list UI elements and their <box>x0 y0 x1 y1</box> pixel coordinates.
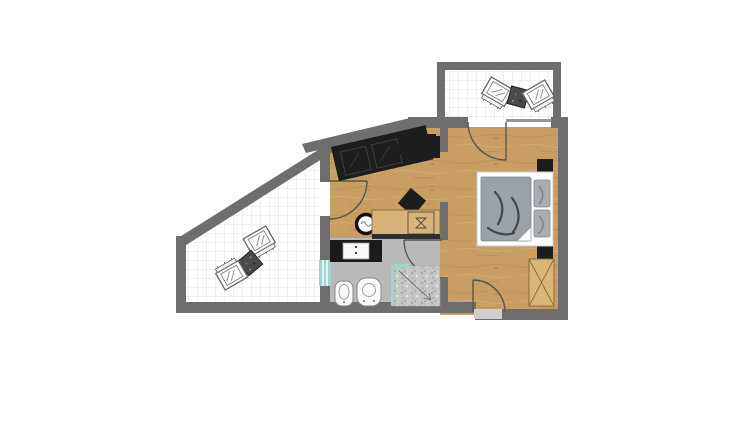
shower-glass-left <box>391 266 394 306</box>
bathroom-window-glass <box>319 260 331 286</box>
pillow-2 <box>534 210 550 237</box>
partition-wall-mid <box>440 202 448 240</box>
washbasin <box>343 243 369 259</box>
basin-faucet-dot-2 <box>355 252 357 254</box>
toilet <box>357 278 381 306</box>
floor-plan-canvas <box>0 0 754 435</box>
terrace-window-line <box>506 119 551 122</box>
duvet <box>481 177 531 241</box>
lower-terrace-left-wall <box>176 236 186 313</box>
kitchenette-counter <box>372 210 440 236</box>
upper-terrace-right-wall <box>553 62 561 120</box>
shower <box>391 264 440 306</box>
entry-threshold <box>474 309 502 319</box>
bidet <box>335 281 353 306</box>
bathroom-window <box>319 260 331 286</box>
basin-faucet-dot-1 <box>355 246 357 248</box>
counter-edge <box>372 234 440 239</box>
partition-wall-bottom <box>440 277 448 304</box>
shower-tray <box>394 266 440 306</box>
partition-wall-top <box>440 120 448 152</box>
nightstand-bottom <box>537 246 553 260</box>
tv-sideboard <box>424 136 440 158</box>
shower-glass-top <box>394 264 409 267</box>
double-bed <box>477 172 553 246</box>
kitchenette <box>372 210 440 239</box>
nightstand-top <box>537 159 553 173</box>
upper-terrace-left-wall <box>437 62 445 120</box>
upper-terrace-top-wall <box>437 62 561 70</box>
right-wall <box>558 117 568 318</box>
wardrobe <box>529 259 554 306</box>
floor-plan-svg <box>0 0 754 435</box>
left-wall-upper <box>320 146 330 182</box>
